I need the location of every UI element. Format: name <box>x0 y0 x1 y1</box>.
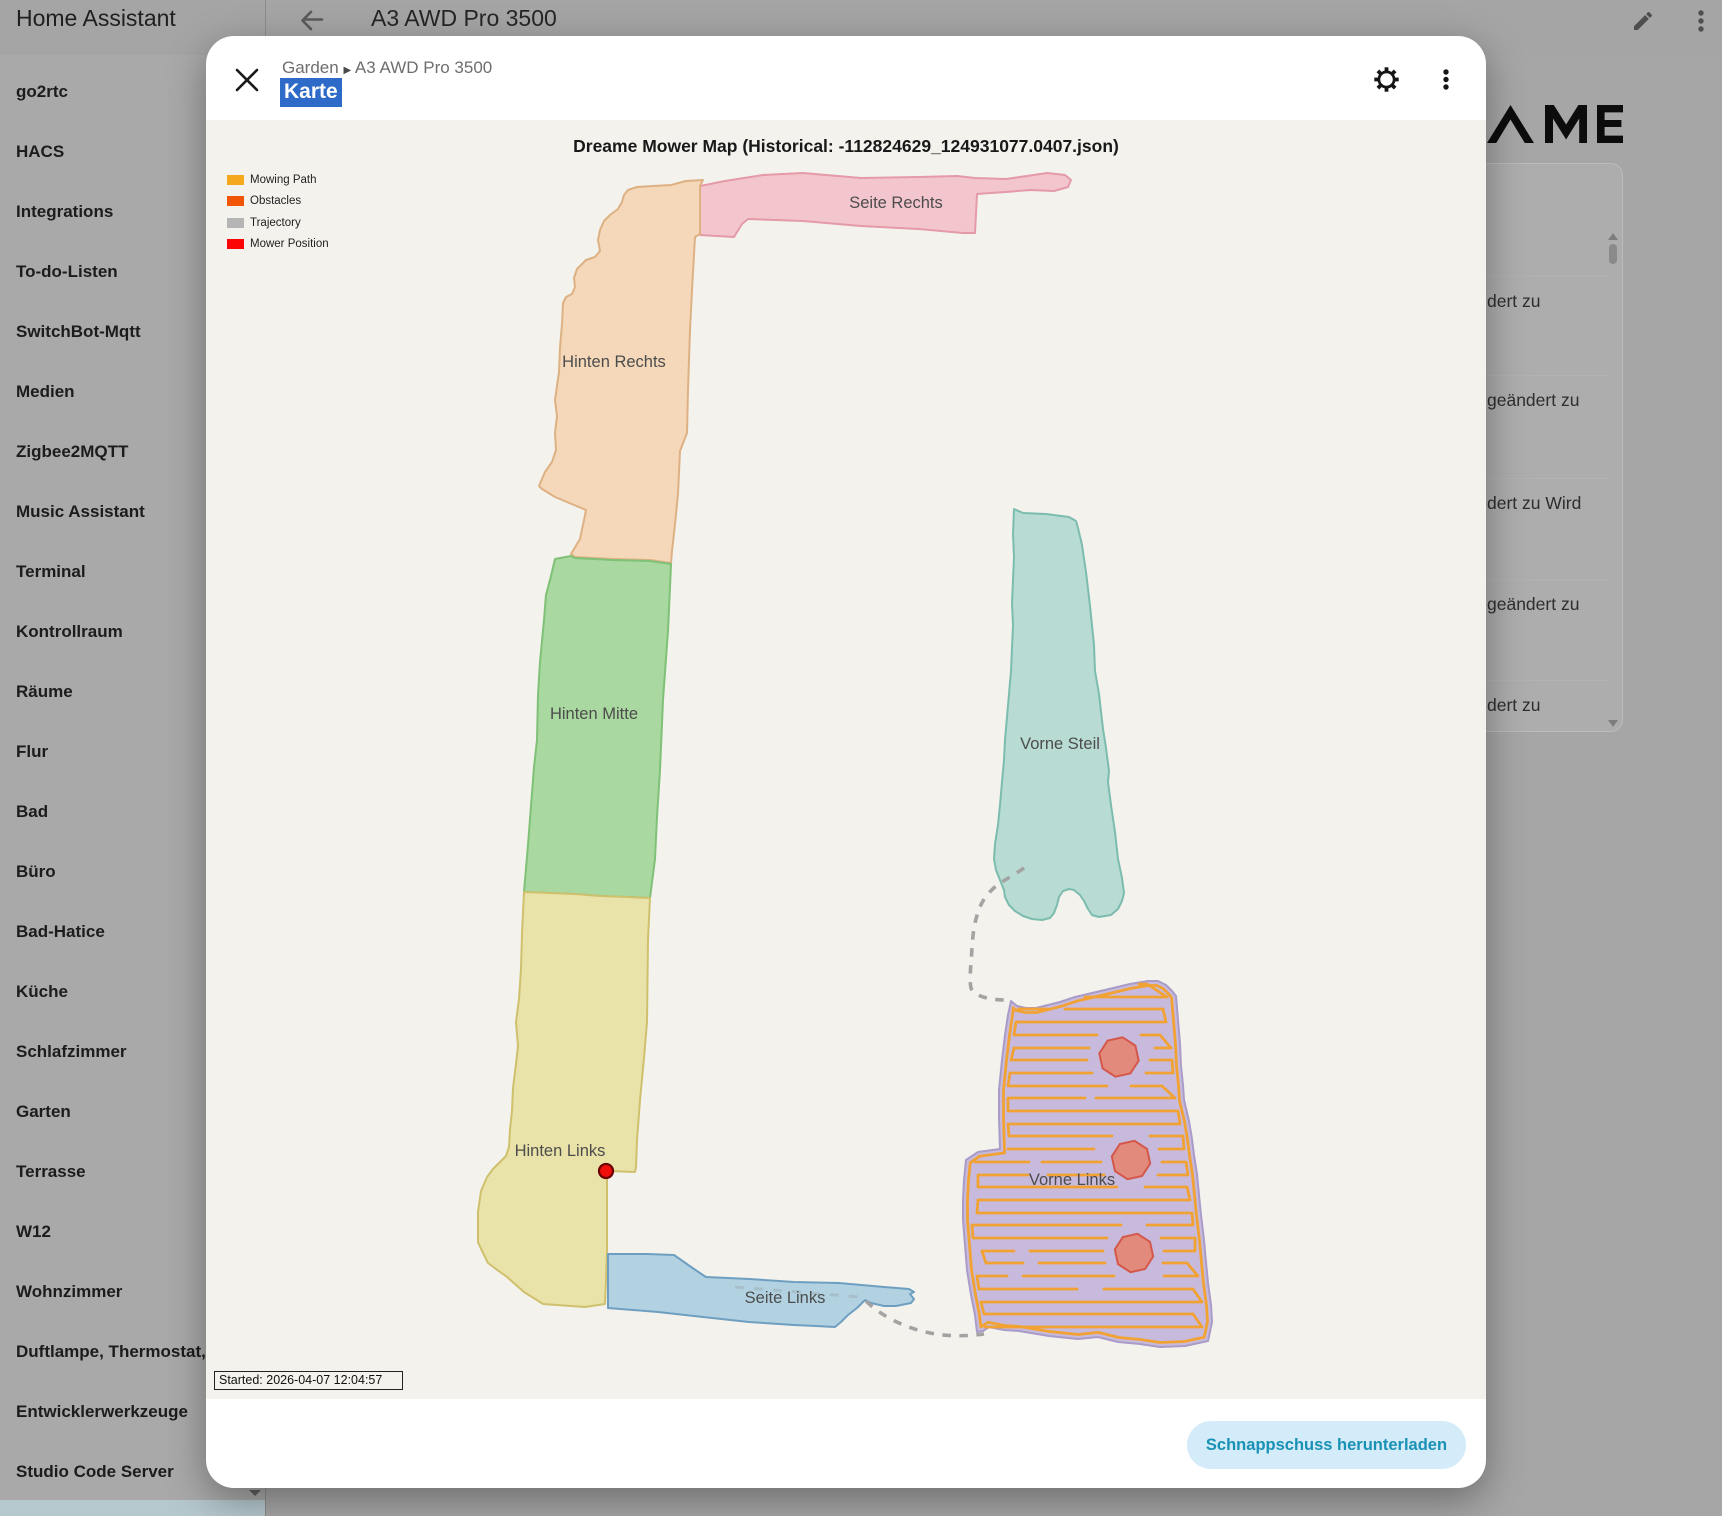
svg-text:Vorne Links: Vorne Links <box>1029 1171 1115 1189</box>
svg-text:Seite Rechts: Seite Rechts <box>849 194 943 212</box>
svg-text:Seite Links: Seite Links <box>745 1289 826 1307</box>
svg-text:Hinten Links: Hinten Links <box>515 1142 606 1160</box>
svg-text:Vorne Steil: Vorne Steil <box>1020 735 1100 753</box>
svg-text:Hinten Mitte: Hinten Mitte <box>550 705 638 723</box>
svg-text:Hinten Rechts: Hinten Rechts <box>562 353 666 371</box>
